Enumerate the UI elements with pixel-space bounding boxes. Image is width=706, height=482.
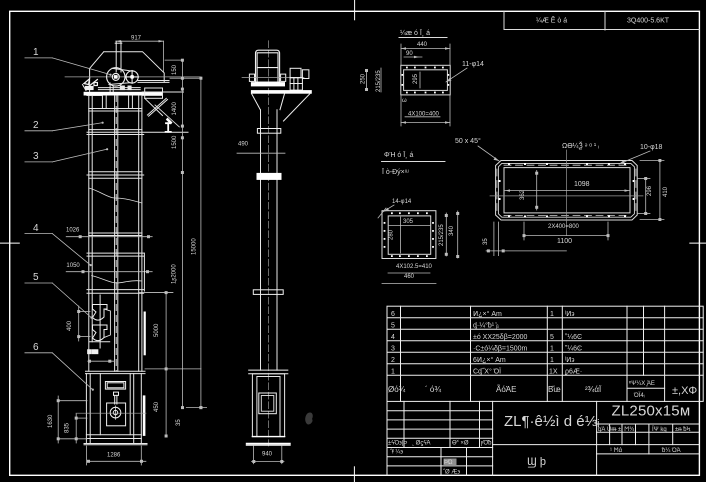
svg-text:¼Æ Ê ὸ á: ¼Æ Ê ὸ á — [536, 16, 567, 25]
svg-text:917: 917 — [131, 36, 142, 42]
svg-text:ϼ6Æ·: ϼ6Æ· — [565, 369, 582, 376]
svg-text:1: 1 — [391, 369, 395, 376]
svg-text:ˡͶ϶: ˡͶ϶ — [565, 357, 574, 364]
svg-text:5: 5 — [550, 334, 554, 341]
svg-text:1: 1 — [550, 311, 554, 318]
svg-text:10-φ18: 10-φ18 — [640, 144, 663, 151]
svg-text:1050: 1050 — [66, 263, 80, 269]
svg-text:280: 280 — [389, 229, 395, 240]
svg-text:±ᵰ ᵬϞ: ±ᵰ ᵬϞ — [675, 427, 691, 433]
svg-text:Ϲᶁ˝X° ΌΪ: Ϲᶁ˝X° ΌΪ — [473, 368, 501, 376]
svg-text:¸ Øϛϟ̈А: ¸ Øϛϟ̈А — [412, 441, 431, 447]
svg-text:ω: ω — [402, 98, 407, 104]
svg-text:ˮ¼6Ͼ: ˮ¼6Ͼ — [565, 345, 582, 353]
svg-text:ZL250x15м: ZL250x15м — [612, 403, 691, 420]
svg-text:Ϣ ϸ: Ϣ ϸ — [527, 456, 546, 468]
svg-text:410: 410 — [663, 186, 669, 197]
svg-text:Ͷ¿×° Аm: Ͷ¿×° Аm — [473, 310, 502, 318]
svg-text:1: 1 — [33, 47, 39, 58]
svg-text:΅ᵮ ¼϶: ΅ᵮ ¼϶ — [390, 449, 403, 456]
svg-text:ˮ¼6Ͼ: ˮ¼6Ͼ — [565, 333, 582, 341]
svg-text:400: 400 — [67, 320, 73, 331]
svg-text:150: 150 — [172, 64, 178, 75]
svg-text:1100: 1100 — [557, 238, 572, 245]
svg-text:6: 6 — [391, 311, 395, 318]
svg-text:340: 340 — [449, 225, 455, 236]
svg-text:460: 460 — [404, 274, 415, 280]
svg-text:1400: 1400 — [172, 101, 178, 115]
svg-text:1ʂ2000: 1ʂ2000 — [172, 264, 178, 284]
svg-text:±ϟΌ϶|Ϸ: ±ϟΌ϶|Ϸ — [388, 441, 407, 447]
svg-text:1286: 1286 — [107, 453, 121, 459]
svg-text:1026: 1026 — [66, 228, 80, 234]
svg-text:¼æ ó Ī¸ á: ¼æ ó Ī¸ á — [400, 29, 430, 37]
svg-text:ΌΪ4ᵢ: ΌΪ4ᵢ — [633, 392, 645, 399]
svg-text:215/235: 215/235 — [376, 70, 382, 92]
svg-text:ᶁ·¼°ᵬ¹ ̓ᵦ: ᶁ·¼°ᵬ¹ ̓ᵦ — [473, 322, 499, 330]
svg-text:±,XΦ: ±,XΦ — [672, 385, 697, 397]
svg-text:11-φ14: 11-φ14 — [462, 61, 484, 68]
svg-text:440: 440 — [417, 42, 428, 48]
svg-text:35: 35 — [483, 238, 489, 245]
svg-text:ϴ˟ ×Ø: ϴ˟ ×Ø — [452, 440, 469, 447]
svg-text:ˡͶ϶: ˡͶ϶ — [565, 311, 574, 318]
svg-text:4: 4 — [33, 223, 39, 234]
svg-text:295: 295 — [413, 73, 419, 84]
svg-text:305: 305 — [403, 219, 414, 225]
svg-text:±ó XX25δβ=2000: ±ó XX25δβ=2000 — [473, 334, 527, 341]
svg-text:1630: 1630 — [48, 414, 54, 428]
svg-text:ϷΏ: ϷΏ — [444, 460, 453, 466]
svg-text:1: 1 — [550, 357, 554, 364]
svg-text:3: 3 — [33, 151, 39, 162]
svg-text:1X: 1X — [549, 369, 558, 376]
svg-text:Øό¾: Øό¾ — [388, 385, 406, 394]
svg-text:15000: 15000 — [192, 238, 198, 255]
svg-text:´ ό¾: ´ ό¾ — [425, 385, 441, 394]
svg-text:ᶀΆ Ūᵯ ±ᵻ Ϻ¾: ᶀΆ Ūᵯ ±ᵻ Ϻ¾ — [598, 426, 635, 433]
svg-text:6: 6 — [33, 342, 39, 353]
svg-text:1500: 1500 — [172, 135, 178, 149]
svg-text:1098: 1098 — [574, 181, 590, 188]
svg-text:3: 3 — [391, 346, 395, 353]
svg-text:490: 490 — [238, 142, 249, 148]
svg-text:Ī ò-Ðý×ᵚ: Ī ò-Ðý×ᵚ — [382, 168, 409, 176]
svg-text:5000: 5000 — [154, 323, 160, 337]
svg-text:5: 5 — [391, 323, 395, 330]
svg-text:35: 35 — [176, 419, 182, 426]
svg-text:4X102.5=410: 4X102.5=410 — [396, 264, 433, 270]
svg-text:2X400=800: 2X400=800 — [548, 224, 580, 230]
svg-text:Β̋ᵫ: Β̋ᵫ — [548, 385, 561, 394]
svg-text:ϝΌ̈ᵬ: ϝΌ̈ᵬ — [481, 441, 492, 447]
svg-text:6Ͷ¿×° Аm: 6Ͷ¿×° Аm — [473, 356, 506, 364]
svg-text:¹ Ϻά: ¹ Ϻά — [610, 447, 623, 454]
svg-text:940: 940 — [262, 452, 273, 458]
svg-text:3Q400-5.6ΚΤ: 3Q400-5.6ΚΤ — [627, 18, 670, 25]
svg-text:5: 5 — [33, 272, 39, 283]
svg-text:2: 2 — [391, 357, 395, 364]
svg-text:215/235: 215/235 — [439, 224, 445, 246]
svg-text:1: 1 — [550, 346, 554, 353]
svg-text:·C±ó¼δβ=1500m: ·C±ó¼δβ=1500m — [473, 346, 528, 353]
svg-text:835: 835 — [65, 422, 71, 433]
svg-text:250: 250 — [361, 73, 367, 84]
svg-text:4: 4 — [391, 334, 395, 341]
svg-text:296: 296 — [647, 185, 653, 196]
svg-text:50 x 45°: 50 x 45° — [455, 137, 481, 145]
svg-text:2: 2 — [33, 120, 39, 131]
svg-text:ΪΨ kg: ΪΨ kg — [652, 426, 667, 433]
svg-text:362: 362 — [520, 189, 526, 200]
svg-text:14-φ14: 14-φ14 — [392, 199, 412, 205]
svg-text:ᵬ¼ ΌΆ: ᵬ¼ ΌΆ — [661, 448, 681, 454]
svg-text:ZL¶·ê½ì d é⅓ᵢ: ZL¶·ê½ì d é⅓ᵢ — [504, 413, 599, 430]
svg-text:90: 90 — [406, 51, 413, 57]
svg-text:΅Ø Æ϶: ΅Ø Æ϶ — [443, 469, 460, 476]
svg-text:ÃόΆE: ÃόΆE — [496, 385, 516, 394]
svg-text:ᵄΨ¼X ̥ΆE: ᵄΨ¼X ̥ΆE — [628, 381, 655, 387]
svg-text:450: 450 — [154, 401, 160, 412]
svg-text:ΦΉ ó Ī¸ á: ΦΉ ó Ī¸ á — [384, 151, 413, 159]
svg-text:Ωϴ¼Ѯ ᵊ ᵅ ¹ ᵢ: Ωϴ¼Ѯ ᵊ ᵅ ¹ ᵢ — [562, 142, 599, 150]
svg-text:²¾άΪ: ²¾άΪ — [585, 385, 602, 394]
